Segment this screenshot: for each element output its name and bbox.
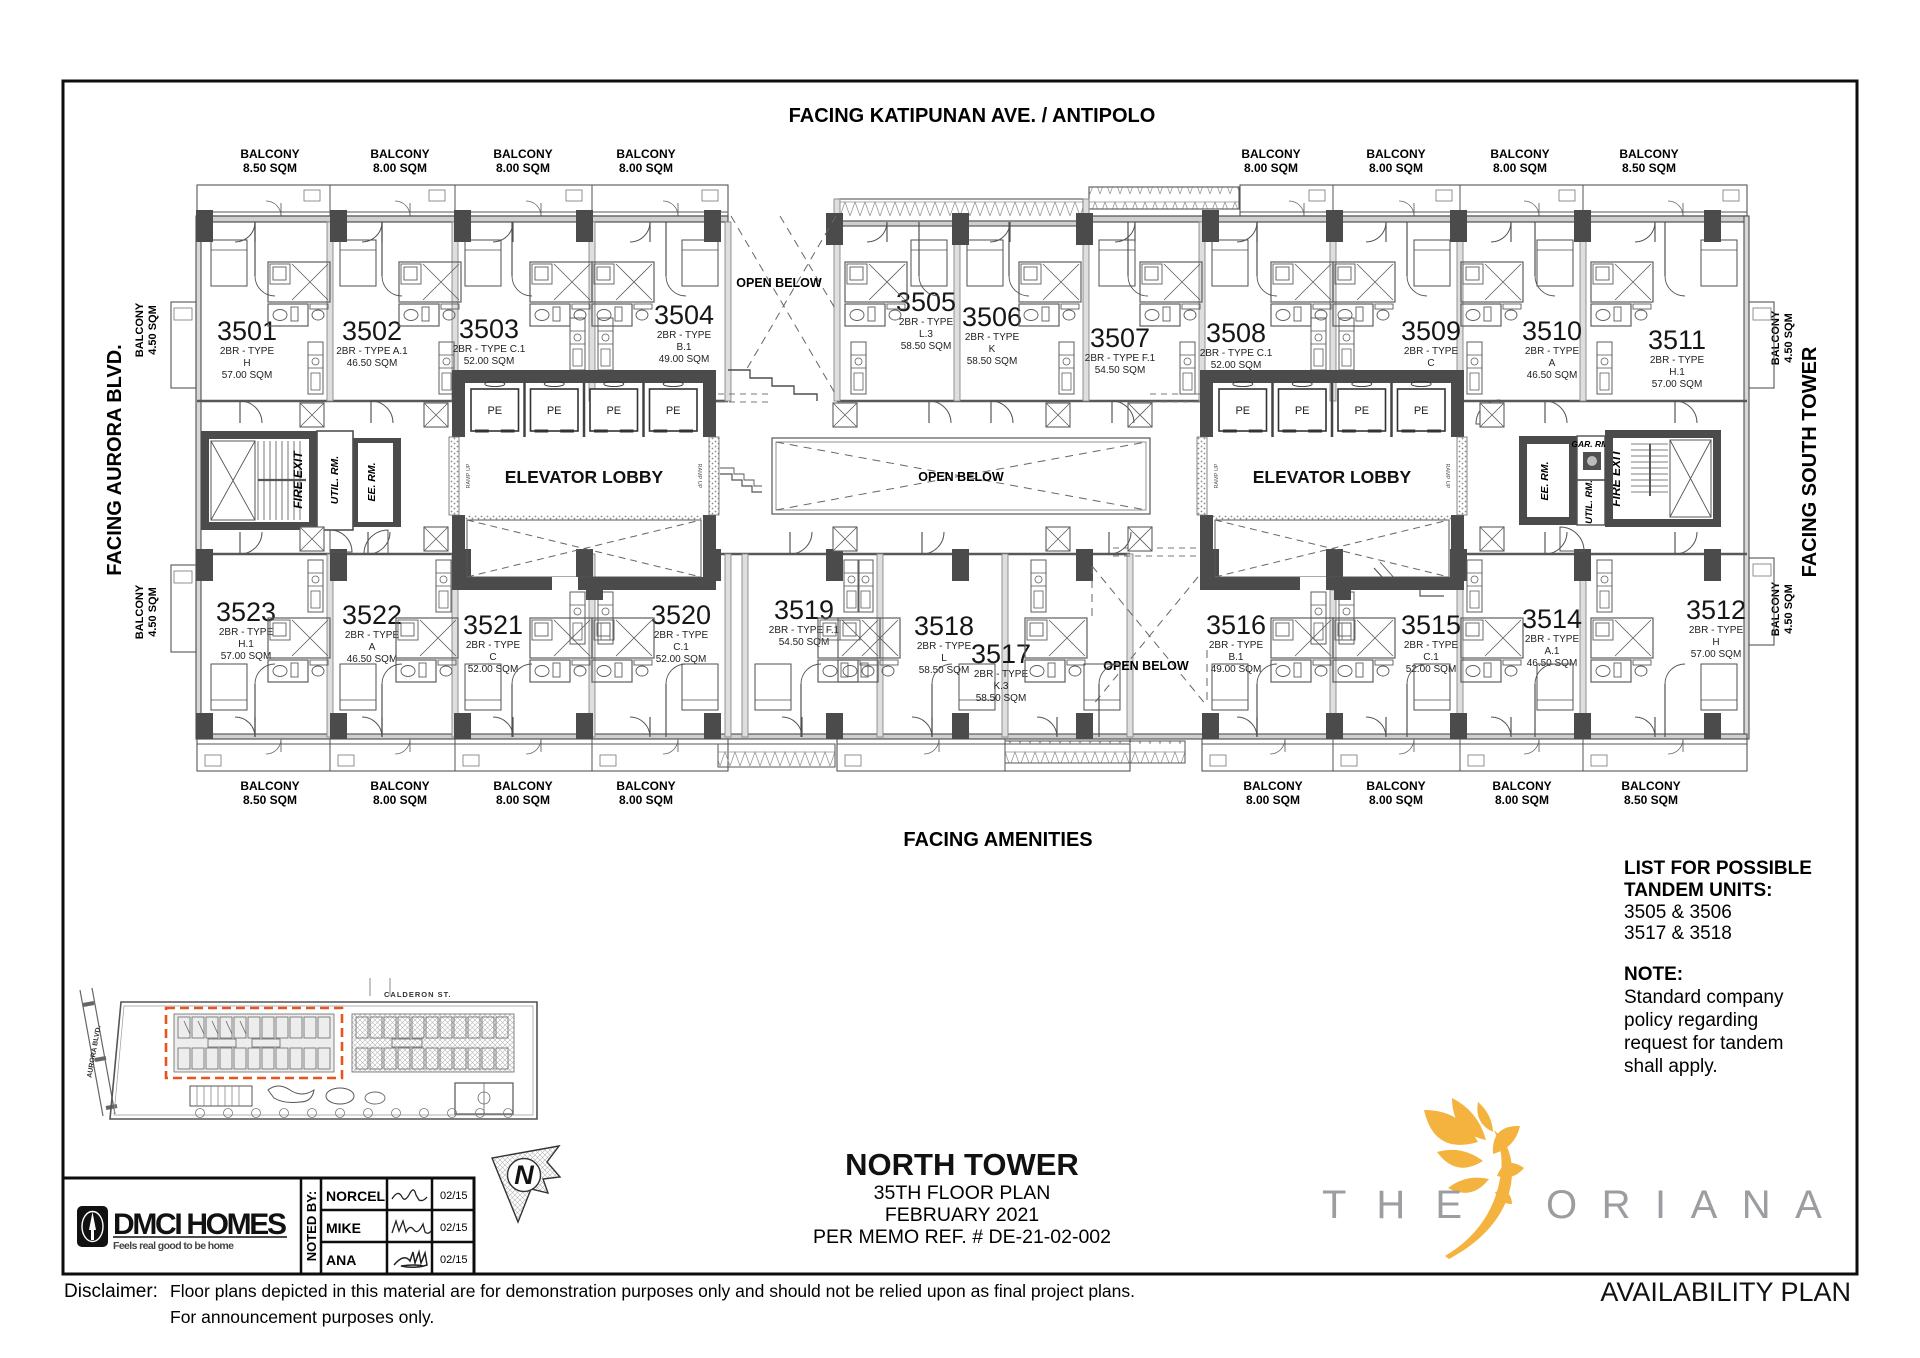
svg-text:8.00 SQM: 8.00 SQM	[1246, 793, 1300, 807]
svg-text:RAMP UP: RAMP UP	[696, 464, 702, 489]
svg-text:FIRE EXIT: FIRE EXIT	[291, 450, 305, 509]
svg-text:2BR - TYPE F.1: 2BR - TYPE F.1	[1085, 353, 1156, 364]
svg-text:46.50 SQM: 46.50 SQM	[347, 654, 398, 665]
svg-text:UTIL. RM.: UTIL. RM.	[1584, 480, 1595, 524]
svg-text:C: C	[489, 652, 496, 663]
svg-text:Feels real good to be home: Feels real good to be home	[113, 1240, 234, 1252]
svg-text:2BR - TYPE: 2BR - TYPE	[219, 627, 274, 638]
svg-text:02/15: 02/15	[440, 1254, 468, 1266]
svg-text:2BR - TYPE: 2BR - TYPE	[1404, 346, 1459, 357]
svg-text:H.1: H.1	[1669, 367, 1685, 378]
svg-text:35TH FLOOR PLAN: 35TH FLOOR PLAN	[874, 1182, 1051, 1204]
svg-text:3517: 3517	[971, 639, 1031, 669]
svg-text:8.50 SQM: 8.50 SQM	[243, 161, 297, 175]
svg-text:BALCONY: BALCONY	[1492, 779, 1551, 793]
svg-text:Disclaimer:: Disclaimer:	[64, 1281, 158, 1302]
svg-text:K: K	[989, 344, 996, 355]
svg-text:BALCONY: BALCONY	[493, 779, 552, 793]
svg-text:BALCONY: BALCONY	[1621, 779, 1680, 793]
svg-text:OPEN BELOW: OPEN BELOW	[736, 276, 822, 290]
svg-text:FACING SOUTH TOWER: FACING SOUTH TOWER	[1799, 346, 1821, 577]
svg-text:BALCONY: BALCONY	[493, 147, 552, 161]
svg-text:3510: 3510	[1522, 316, 1582, 346]
svg-text:DMCI HOMES: DMCI HOMES	[113, 1208, 287, 1241]
svg-text:2BR - TYPE: 2BR - TYPE	[1209, 640, 1264, 651]
svg-text:2BR - TYPE: 2BR - TYPE	[657, 330, 712, 341]
svg-text:AVAILABILITY PLAN: AVAILABILITY PLAN	[1600, 1277, 1851, 1307]
svg-text:52.00 SQM: 52.00 SQM	[1211, 360, 1262, 371]
svg-text:2BR - TYPE F.1: 2BR - TYPE F.1	[769, 625, 840, 636]
svg-text:4.50 SQM: 4.50 SQM	[147, 587, 159, 637]
svg-text:NORTH TOWER: NORTH TOWER	[845, 1147, 1079, 1182]
svg-text:H: H	[1712, 637, 1719, 648]
svg-text:2BR - TYPE: 2BR - TYPE	[965, 332, 1020, 343]
svg-text:BALCONY: BALCONY	[134, 584, 146, 639]
svg-text:8.50 SQM: 8.50 SQM	[1624, 793, 1678, 807]
svg-text:BALCONY: BALCONY	[1770, 310, 1782, 365]
svg-text:2BR - TYPE: 2BR - TYPE	[1650, 355, 1705, 366]
svg-text:52.00 SQM: 52.00 SQM	[656, 654, 707, 665]
svg-text:PE: PE	[1235, 405, 1250, 417]
svg-text:Floor plans depicted in this m: Floor plans depicted in this material ar…	[170, 1281, 1135, 1301]
svg-text:58.50 SQM: 58.50 SQM	[901, 341, 952, 352]
svg-text:2BR - TYPE: 2BR - TYPE	[899, 317, 954, 328]
svg-text:8.50 SQM: 8.50 SQM	[1622, 161, 1676, 175]
svg-text:A.1: A.1	[1544, 646, 1559, 657]
svg-text:49.00 SQM: 49.00 SQM	[659, 354, 710, 365]
svg-text:8.00 SQM: 8.00 SQM	[373, 793, 427, 807]
svg-text:57.00 SQM: 57.00 SQM	[1652, 379, 1703, 390]
svg-text:L.3: L.3	[919, 329, 933, 340]
svg-text:BALCONY: BALCONY	[616, 779, 675, 793]
svg-text:C: C	[1427, 358, 1434, 369]
svg-text:ANA: ANA	[326, 1252, 356, 1268]
svg-text:8.50 SQM: 8.50 SQM	[243, 793, 297, 807]
svg-text:57.00 SQM: 57.00 SQM	[1691, 649, 1742, 660]
svg-text:RAMP UP: RAMP UP	[1444, 464, 1450, 489]
svg-text:RAMP UP: RAMP UP	[466, 463, 472, 488]
svg-text:4.50 SQM: 4.50 SQM	[1783, 584, 1795, 634]
svg-text:FACING AURORA BLVD.: FACING AURORA BLVD.	[104, 344, 126, 575]
svg-text:B.1: B.1	[1228, 652, 1243, 663]
svg-text:BALCONY: BALCONY	[616, 147, 675, 161]
svg-text:OPEN BELOW: OPEN BELOW	[1103, 659, 1189, 673]
svg-text:8.00 SQM: 8.00 SQM	[1493, 161, 1547, 175]
svg-text:PE: PE	[1354, 405, 1369, 417]
svg-text:8.00 SQM: 8.00 SQM	[619, 793, 673, 807]
svg-text:BALCONY: BALCONY	[370, 147, 429, 161]
svg-text:PE: PE	[487, 405, 502, 417]
svg-text:3503: 3503	[459, 314, 519, 344]
svg-text:THE: THE	[1322, 1183, 1492, 1227]
svg-text:3519: 3519	[774, 595, 834, 625]
svg-text:TANDEM UNITS:: TANDEM UNITS:	[1624, 880, 1772, 901]
svg-text:8.00 SQM: 8.00 SQM	[496, 161, 550, 175]
svg-text:8.00 SQM: 8.00 SQM	[1244, 161, 1298, 175]
svg-text:57.00 SQM: 57.00 SQM	[221, 651, 272, 662]
svg-text:CALDERON ST.: CALDERON ST.	[384, 990, 451, 999]
svg-text:2BR - TYPE: 2BR - TYPE	[654, 630, 709, 641]
svg-text:OPEN BELOW: OPEN BELOW	[918, 470, 1004, 484]
svg-text:N: N	[514, 1160, 534, 1190]
svg-text:PE: PE	[1414, 405, 1429, 417]
svg-text:C.1: C.1	[673, 642, 689, 653]
svg-text:NORCEL: NORCEL	[326, 1188, 386, 1204]
svg-text:BALCONY: BALCONY	[1619, 147, 1678, 161]
svg-text:02/15: 02/15	[440, 1222, 468, 1234]
svg-text:A: A	[1549, 358, 1556, 369]
svg-text:NOTED BY:: NOTED BY:	[304, 1191, 319, 1262]
svg-text:8.00 SQM: 8.00 SQM	[1495, 793, 1549, 807]
svg-text:3516: 3516	[1206, 610, 1266, 640]
svg-text:B.1: B.1	[676, 342, 691, 353]
svg-text:8.00 SQM: 8.00 SQM	[496, 793, 550, 807]
svg-text:4.50 SQM: 4.50 SQM	[147, 305, 159, 355]
svg-text:3523: 3523	[216, 597, 276, 627]
svg-text:EE. RM.: EE. RM.	[366, 462, 378, 501]
svg-text:BALCONY: BALCONY	[1241, 147, 1300, 161]
svg-text:H.1: H.1	[238, 639, 254, 650]
svg-text:BALCONY: BALCONY	[240, 147, 299, 161]
svg-text:3514: 3514	[1522, 604, 1582, 634]
svg-text:For announcement purposes only: For announcement purposes only.	[170, 1307, 434, 1327]
svg-text:3522: 3522	[342, 600, 402, 630]
svg-text:RAMP UP: RAMP UP	[1214, 463, 1220, 488]
svg-text:GAR. RM.: GAR. RM.	[1571, 439, 1610, 449]
svg-text:58.50 SQM: 58.50 SQM	[976, 693, 1027, 704]
svg-text:54.50 SQM: 54.50 SQM	[1095, 365, 1146, 376]
svg-text:BALCONY: BALCONY	[1243, 779, 1302, 793]
svg-text:2BR - TYPE: 2BR - TYPE	[1525, 634, 1580, 645]
svg-text:PE: PE	[547, 405, 562, 417]
svg-text:FEBRUARY 2021: FEBRUARY 2021	[885, 1204, 1039, 1226]
svg-text:3509: 3509	[1401, 316, 1461, 346]
svg-text:NOTE:: NOTE:	[1624, 964, 1683, 985]
svg-text:52.00 SQM: 52.00 SQM	[464, 356, 515, 367]
svg-text:shall apply.: shall apply.	[1624, 1056, 1718, 1077]
svg-text:H: H	[243, 358, 250, 369]
svg-text:Standard company: Standard company	[1624, 987, 1784, 1008]
svg-text:46.50 SQM: 46.50 SQM	[347, 358, 398, 369]
svg-text:54.50 SQM: 54.50 SQM	[779, 637, 830, 648]
svg-text:3517 & 3518: 3517 & 3518	[1624, 923, 1732, 944]
svg-text:2BR - TYPE C.1: 2BR - TYPE C.1	[453, 344, 526, 355]
svg-text:3507: 3507	[1090, 323, 1150, 353]
svg-text:49.00 SQM: 49.00 SQM	[1211, 664, 1262, 675]
svg-text:2BR - TYPE: 2BR - TYPE	[917, 641, 972, 652]
svg-text:2BR - TYPE: 2BR - TYPE	[1689, 625, 1744, 636]
svg-text:MIKE: MIKE	[326, 1220, 361, 1236]
svg-text:2BR - TYPE: 2BR - TYPE	[974, 669, 1029, 680]
svg-text:2BR - TYPE A.1: 2BR - TYPE A.1	[336, 346, 408, 357]
svg-text:FACING AMENITIES: FACING AMENITIES	[903, 829, 1092, 851]
svg-text:8.00 SQM: 8.00 SQM	[1369, 793, 1423, 807]
svg-text:57.00 SQM: 57.00 SQM	[222, 370, 273, 381]
svg-text:BALCONY: BALCONY	[370, 779, 429, 793]
svg-text:3504: 3504	[654, 300, 714, 330]
svg-text:A: A	[369, 642, 376, 653]
svg-text:BALCONY: BALCONY	[1490, 147, 1549, 161]
svg-text:3520: 3520	[651, 600, 711, 630]
svg-text:PE: PE	[666, 405, 681, 417]
svg-text:3506: 3506	[962, 302, 1022, 332]
svg-text:2BR - TYPE: 2BR - TYPE	[220, 346, 275, 357]
svg-text:3521: 3521	[463, 610, 523, 640]
svg-text:PE: PE	[1295, 405, 1310, 417]
svg-text:4.50 SQM: 4.50 SQM	[1783, 313, 1795, 363]
svg-text:BALCONY: BALCONY	[1366, 147, 1425, 161]
svg-text:2BR - TYPE C.1: 2BR - TYPE C.1	[1200, 348, 1273, 359]
svg-text:2BR - TYPE: 2BR - TYPE	[466, 640, 521, 651]
svg-text:52.00 SQM: 52.00 SQM	[468, 664, 519, 675]
svg-text:EE. RM.: EE. RM.	[1539, 461, 1551, 500]
svg-text:46.50 SQM: 46.50 SQM	[1527, 370, 1578, 381]
svg-text:3505 & 3506: 3505 & 3506	[1624, 902, 1732, 923]
svg-text:2BR - TYPE: 2BR - TYPE	[1404, 640, 1459, 651]
svg-text:58.50 SQM: 58.50 SQM	[967, 356, 1018, 367]
svg-text:request for tandem: request for tandem	[1624, 1033, 1783, 1054]
svg-text:3518: 3518	[914, 611, 974, 641]
svg-text:2BR - TYPE: 2BR - TYPE	[345, 630, 400, 641]
svg-text:BALCONY: BALCONY	[134, 302, 146, 357]
svg-text:BALCONY: BALCONY	[1770, 581, 1782, 636]
svg-text:ORIANA: ORIANA	[1546, 1183, 1846, 1227]
svg-text:8.00 SQM: 8.00 SQM	[373, 161, 427, 175]
svg-text:BALCONY: BALCONY	[240, 779, 299, 793]
svg-text:3502: 3502	[342, 316, 402, 346]
svg-text:LIST FOR POSSIBLE: LIST FOR POSSIBLE	[1624, 858, 1812, 879]
svg-text:policy regarding: policy regarding	[1624, 1010, 1758, 1031]
svg-text:K.3: K.3	[993, 681, 1008, 692]
svg-text:PER MEMO REF. # DE-21-02-002: PER MEMO REF. # DE-21-02-002	[813, 1226, 1111, 1248]
svg-text:8.00 SQM: 8.00 SQM	[619, 161, 673, 175]
svg-text:ELEVATOR LOBBY: ELEVATOR LOBBY	[505, 467, 664, 487]
svg-text:BALCONY: BALCONY	[1366, 779, 1425, 793]
svg-text:PE: PE	[606, 405, 621, 417]
svg-text:3508: 3508	[1206, 318, 1266, 348]
svg-text:ELEVATOR LOBBY: ELEVATOR LOBBY	[1253, 467, 1412, 487]
svg-text:UTIL. RM.: UTIL. RM.	[329, 456, 341, 504]
svg-text:C.1: C.1	[1423, 652, 1439, 663]
svg-text:3511: 3511	[1648, 325, 1706, 355]
svg-text:8.00 SQM: 8.00 SQM	[1369, 161, 1423, 175]
svg-text:58.50 SQM: 58.50 SQM	[919, 665, 970, 676]
svg-text:2BR - TYPE: 2BR - TYPE	[1525, 346, 1580, 357]
svg-text:02/15: 02/15	[440, 1190, 468, 1202]
svg-text:3512: 3512	[1686, 595, 1746, 625]
svg-text:3515: 3515	[1401, 610, 1461, 640]
svg-text:L: L	[941, 653, 947, 664]
svg-text:FACING KATIPUNAN AVE. / ANTIPO: FACING KATIPUNAN AVE. / ANTIPOLO	[789, 105, 1156, 127]
